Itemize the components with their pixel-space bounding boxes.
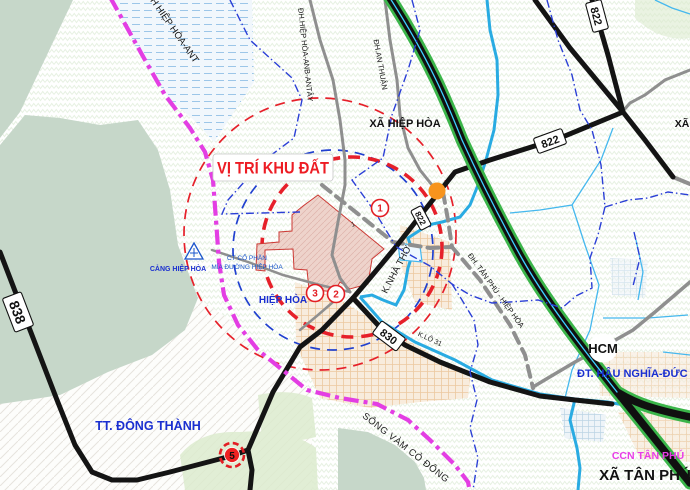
label-xa-edge: XÃ <box>675 117 690 130</box>
label-ct-co-phan-2: MÍA ĐƯỜNG HIỆP HÒA <box>211 262 283 271</box>
svg-text:3: 3 <box>312 289 318 300</box>
orange-site-dot <box>429 183 446 200</box>
label-dt-hau-nghia-duc-hoa: ĐT. HẬU NGHĨA-ĐỨC HÒA <box>577 367 690 380</box>
marker-1: 1 <box>372 200 389 217</box>
svg-text:1: 1 <box>377 204 383 215</box>
label-xa-hiep-hoa: XÃ HIỆP HÒA <box>369 117 440 130</box>
marker-3: 3 <box>307 285 324 302</box>
label-ccn-tan-phu: CCN TÂN PHÚ <box>612 449 684 462</box>
marker-2: 2 <box>328 286 345 303</box>
label-xa-tan-phu: XÃ TÂN PHÚ <box>599 466 690 484</box>
svg-text:5: 5 <box>229 451 235 462</box>
location-map-canvas[interactable]: VỊ TRÍ KHU ĐẤT XÃ HIỆP HÒA XÃ TÂN PHÚ CC… <box>0 0 690 490</box>
map-svg: VỊ TRÍ KHU ĐẤT XÃ HIỆP HÒA XÃ TÂN PHÚ CC… <box>0 0 690 490</box>
svg-text:HCM: HCM <box>588 341 618 356</box>
label-tt-dong-thanh: TT. ĐÔNG THÀNH <box>95 418 201 433</box>
page-title: VỊ TRÍ KHU ĐẤT <box>217 159 329 178</box>
title-box: VỊ TRÍ KHU ĐẤT <box>213 154 333 181</box>
label-hiep-hoa: HIỆP HÒA <box>259 293 307 306</box>
svg-text:2: 2 <box>333 290 339 301</box>
label-cang-hiep-hoa: CẢNG HIỆP HÒA <box>150 264 206 273</box>
